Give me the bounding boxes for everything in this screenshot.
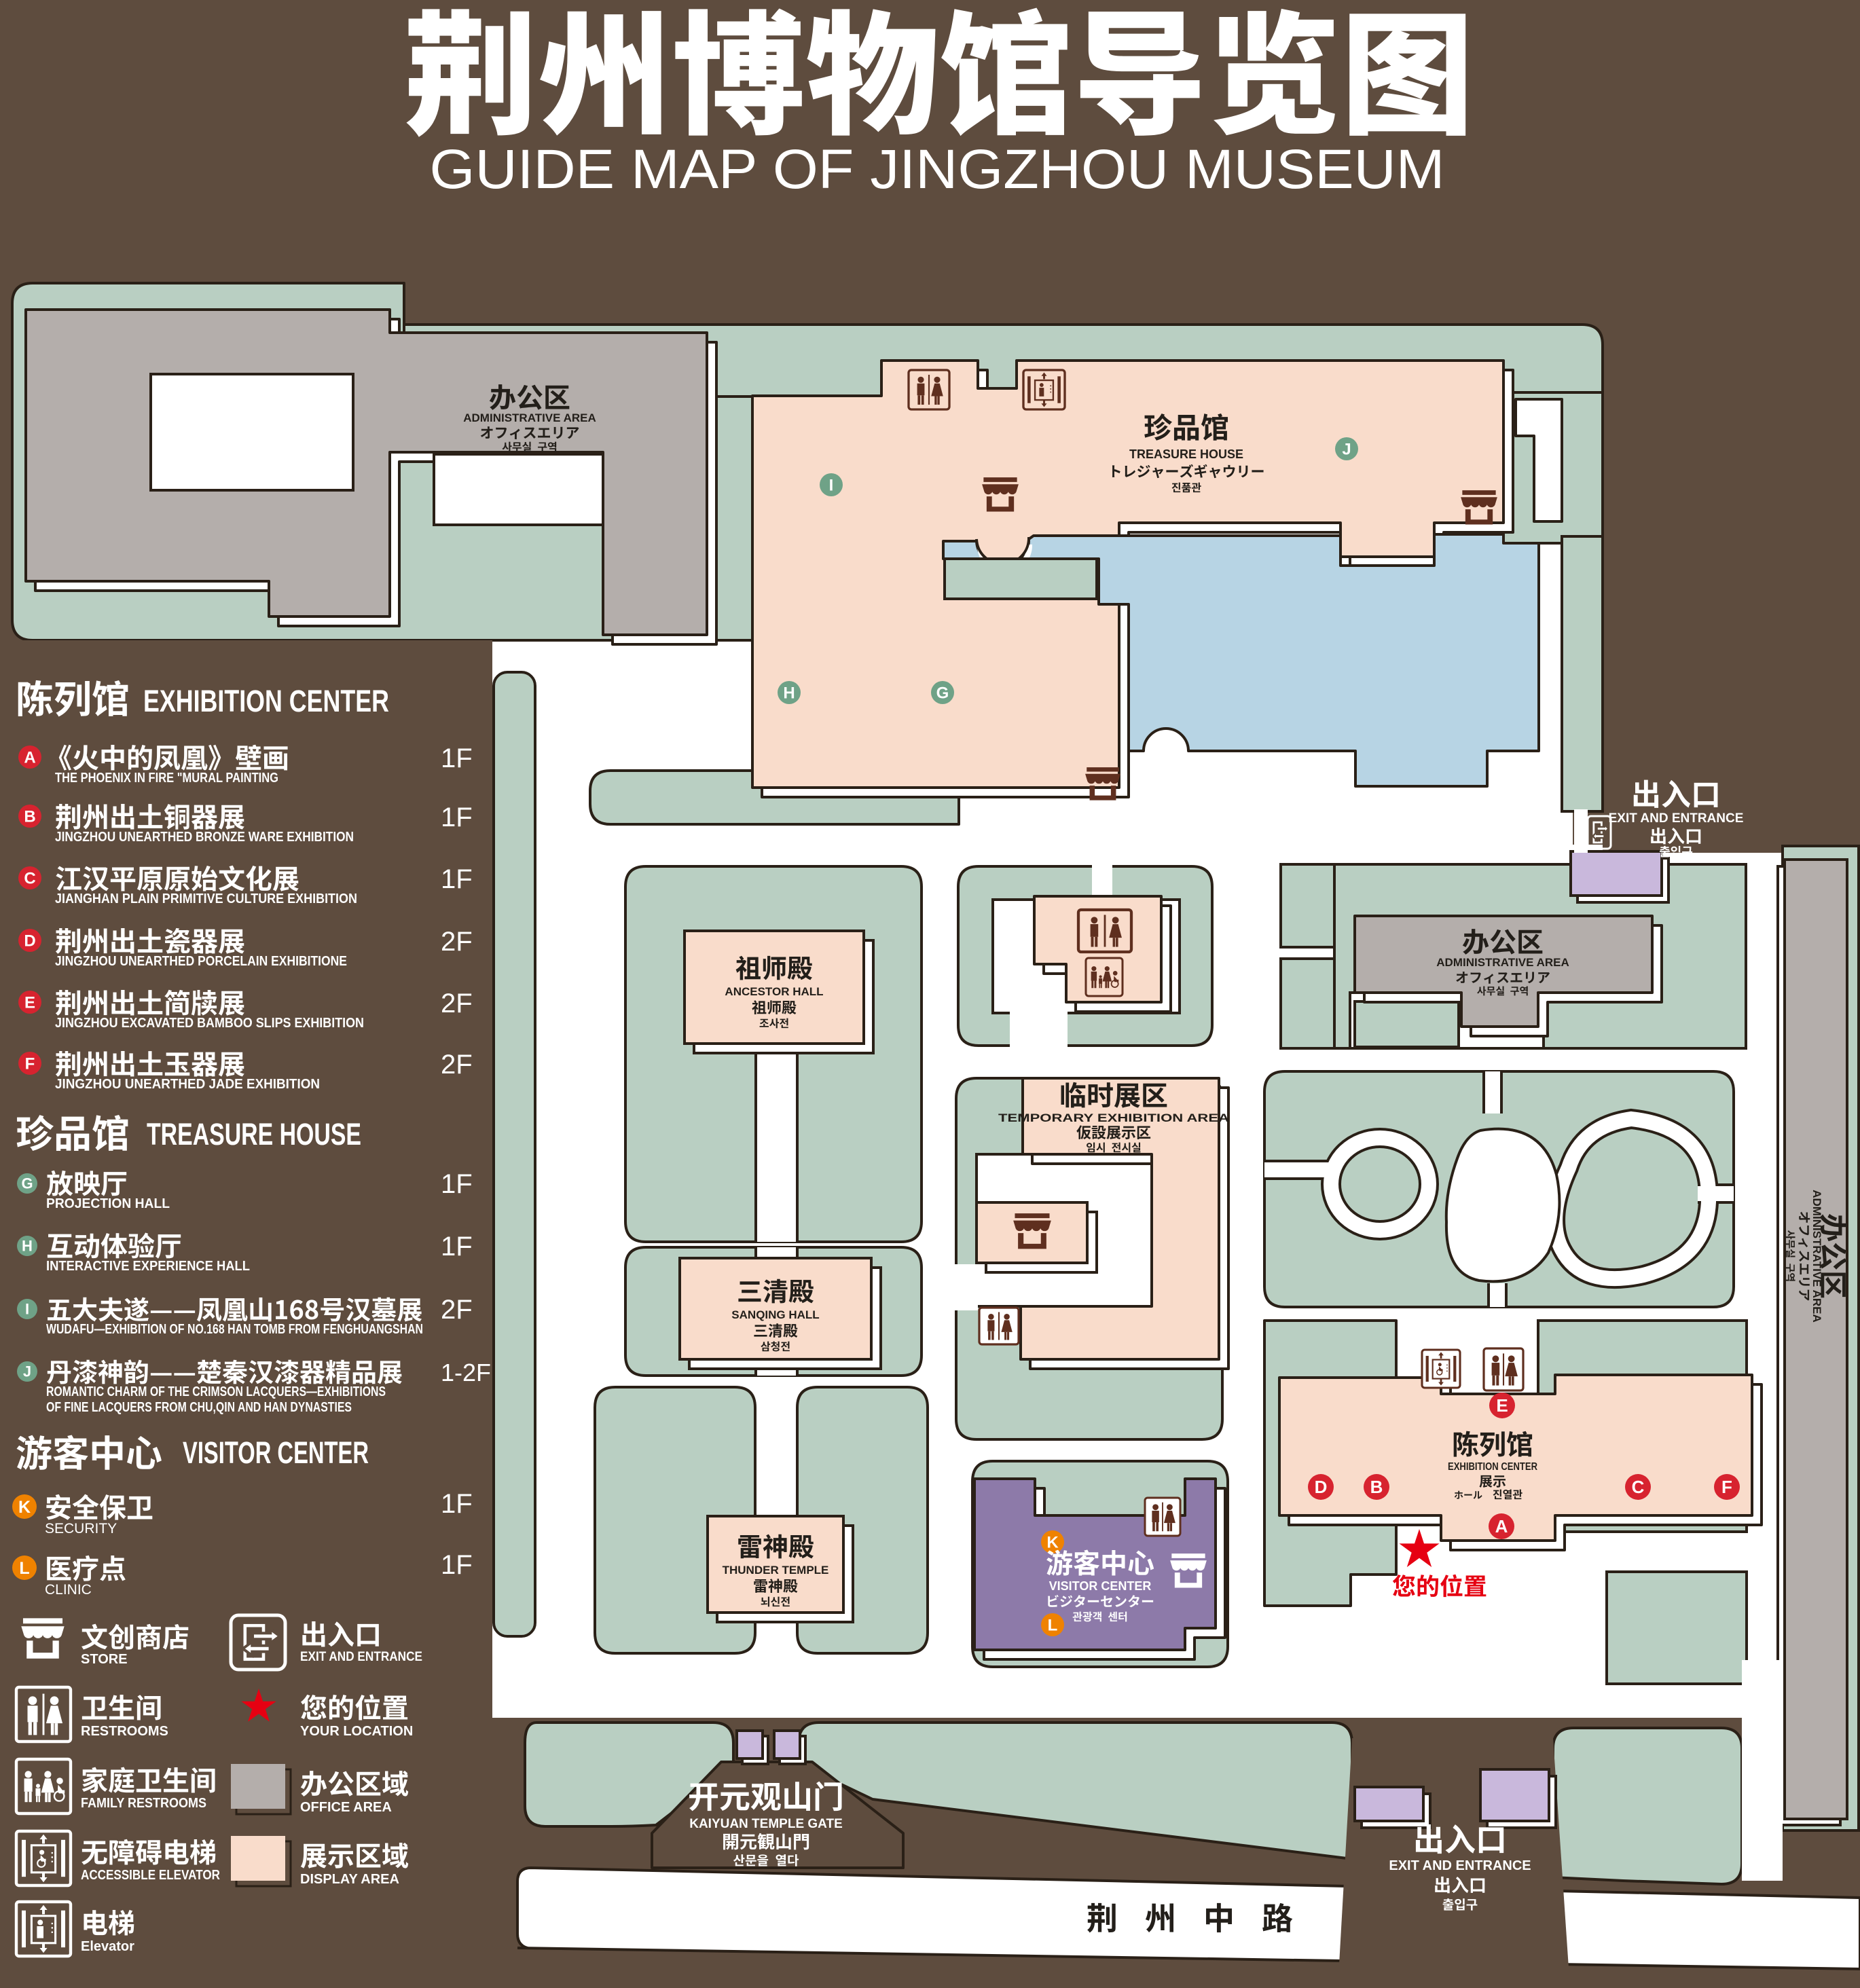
svg-text:F: F (25, 1054, 35, 1073)
svg-text:EXIT AND ENTRANCE: EXIT AND ENTRANCE (300, 1650, 422, 1664)
svg-text:H: H (22, 1238, 33, 1255)
svg-text:PROJECTION HALL: PROJECTION HALL (46, 1196, 170, 1211)
svg-text:DISPLAY AREA: DISPLAY AREA (300, 1872, 399, 1887)
svg-text:YOUR LOCATION: YOUR LOCATION (300, 1724, 413, 1739)
svg-text:H: H (783, 684, 795, 702)
svg-text:ADMINISTRATIVE AREA: ADMINISTRATIVE AREA (463, 411, 596, 424)
svg-text:JIANGHAN PLAIN PRIMITIVE CULTU: JIANGHAN PLAIN PRIMITIVE CULTURE EXHIBIT… (55, 891, 357, 906)
svg-text:B: B (24, 807, 35, 826)
svg-text:VISITOR CENTER: VISITOR CENTER (1049, 1579, 1152, 1593)
svg-text:D: D (1315, 1477, 1328, 1497)
svg-text:JINGZHOU UNEARTHED PORCELAIN E: JINGZHOU UNEARTHED PORCELAIN EXHIBITIONE (55, 954, 347, 969)
svg-text:1F: 1F (441, 743, 473, 773)
svg-text:D: D (24, 932, 35, 950)
svg-text:L: L (1048, 1616, 1058, 1634)
svg-text:TREASURE HOUSE: TREASURE HOUSE (147, 1117, 361, 1152)
svg-text:ACCESSIBLE ELEVATOR: ACCESSIBLE ELEVATOR (81, 1868, 220, 1883)
svg-text:WUDAFU—EXHIBITION OF NO.168 HA: WUDAFU—EXHIBITION OF NO.168 HAN TOMB FRO… (46, 1322, 423, 1337)
svg-text:L: L (19, 1559, 29, 1578)
svg-text:E: E (1496, 1395, 1508, 1416)
svg-text:2F: 2F (441, 1295, 473, 1325)
svg-text:B: B (1370, 1477, 1383, 1497)
svg-text:Elevator: Elevator (81, 1939, 134, 1954)
svg-text:ROMANTIC CHARM OF THE CRIMSON: ROMANTIC CHARM OF THE CRIMSON LACQUERS—E… (46, 1384, 386, 1399)
svg-text:EXHIBITION CENTER: EXHIBITION CENTER (143, 684, 389, 718)
svg-text:G: G (936, 684, 949, 702)
svg-text:E: E (24, 993, 35, 1012)
svg-text:2F: 2F (441, 989, 473, 1018)
svg-text:VISITOR CENTER: VISITOR CENTER (183, 1435, 369, 1470)
svg-text:CLINIC: CLINIC (45, 1582, 92, 1598)
svg-text:F: F (1721, 1477, 1732, 1497)
svg-text:1F: 1F (441, 1550, 473, 1580)
svg-text:THE PHOENIX IN FIRE "MURAL PAI: THE PHOENIX IN FIRE "MURAL PAINTING (55, 771, 278, 786)
svg-text:GUIDE MAP OF JINGZHOU MUSEUM: GUIDE MAP OF JINGZHOU MUSEUM (430, 139, 1445, 200)
svg-text:STORE: STORE (81, 1652, 128, 1667)
svg-text:2F: 2F (441, 1050, 473, 1080)
svg-text:OFFICE AREA: OFFICE AREA (300, 1800, 392, 1815)
svg-text:ADMINISTRATIVE AREA: ADMINISTRATIVE AREA (1810, 1190, 1823, 1323)
svg-text:TEMPORARY EXHIBITION AREA: TEMPORARY EXHIBITION AREA (998, 1111, 1229, 1124)
svg-text:JINGZHOU UNEARTHED JADE EXHIBI: JINGZHOU UNEARTHED JADE EXHIBITION (55, 1077, 320, 1092)
svg-text:ANCESTOR HALL: ANCESTOR HALL (725, 985, 823, 998)
svg-text:2F: 2F (441, 927, 473, 957)
svg-text:K: K (18, 1498, 31, 1517)
svg-text:TREASURE HOUSE: TREASURE HOUSE (1129, 447, 1243, 461)
svg-text:C: C (24, 869, 35, 887)
svg-text:I: I (25, 1301, 29, 1318)
svg-text:G: G (21, 1175, 33, 1192)
svg-text:A: A (1495, 1516, 1508, 1536)
svg-text:RESTROOMS: RESTROOMS (81, 1724, 168, 1739)
svg-text:EXIT AND ENTRANCE: EXIT AND ENTRANCE (1609, 811, 1744, 826)
svg-text:KAIYUAN TEMPLE GATE: KAIYUAN TEMPLE GATE (689, 1817, 843, 1831)
svg-text:J: J (23, 1363, 31, 1380)
svg-text:1F: 1F (441, 1489, 473, 1519)
svg-text:1-2F: 1-2F (441, 1359, 491, 1386)
svg-text:JINGZHOU EXCAVATED BAMBOO SLIP: JINGZHOU EXCAVATED BAMBOO SLIPS EXHIBITI… (55, 1016, 364, 1031)
svg-text:JINGZHOU UNEARTHED BRONZE WARE: JINGZHOU UNEARTHED BRONZE WARE EXHIBITIO… (55, 830, 354, 845)
svg-text:INTERACTIVE EXPERIENCE HALL: INTERACTIVE EXPERIENCE HALL (46, 1259, 250, 1274)
svg-text:SANQING HALL: SANQING HALL (731, 1308, 819, 1321)
svg-text:I: I (829, 476, 834, 494)
svg-text:J: J (1342, 440, 1351, 458)
svg-text:1F: 1F (441, 1169, 473, 1199)
svg-text:OF FINE LACQUERS FROM CHU,QIN: OF FINE LACQUERS FROM CHU,QIN AND HAN DY… (46, 1400, 352, 1415)
svg-text:1F: 1F (441, 803, 473, 832)
svg-text:A: A (24, 748, 35, 767)
svg-text:1F: 1F (441, 864, 473, 894)
svg-text:K: K (1046, 1533, 1059, 1551)
svg-text:THUNDER TEMPLE: THUNDER TEMPLE (723, 1564, 829, 1577)
svg-text:FAMILY RESTROOMS: FAMILY RESTROOMS (81, 1796, 206, 1811)
svg-text:EXHIBITION CENTER: EXHIBITION CENTER (1448, 1461, 1537, 1473)
svg-text:1F: 1F (441, 1232, 473, 1262)
svg-text:SECURITY: SECURITY (45, 1521, 117, 1536)
svg-text:EXIT AND ENTRANCE: EXIT AND ENTRANCE (1389, 1858, 1531, 1873)
svg-text:ADMINISTRATIVE AREA: ADMINISTRATIVE AREA (1436, 956, 1569, 969)
svg-text:C: C (1632, 1477, 1645, 1497)
